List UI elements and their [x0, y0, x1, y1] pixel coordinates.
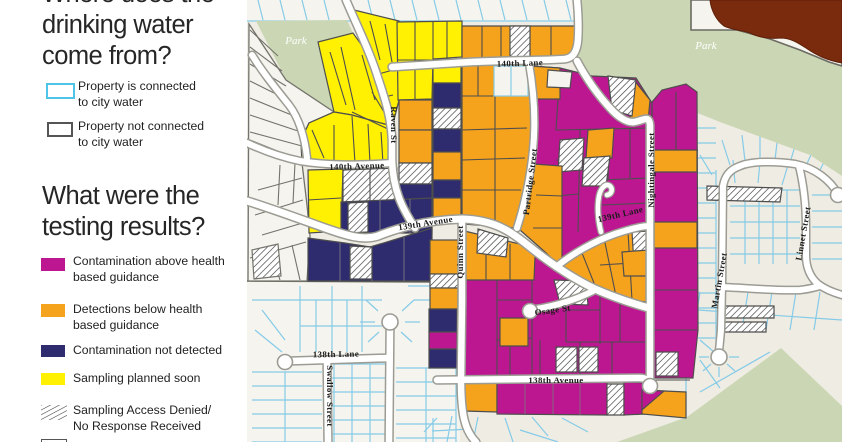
svg-text:Raven St: Raven St — [389, 106, 399, 143]
svg-text:Quinn Street: Quinn Street — [455, 225, 465, 278]
svg-text:Nightingale Street: Nightingale Street — [646, 132, 656, 207]
svg-text:Park: Park — [694, 40, 718, 52]
svg-text:138th Lane: 138th Lane — [313, 349, 359, 360]
svg-text:140th Avenue: 140th Avenue — [329, 160, 385, 172]
svg-text:140th Lane: 140th Lane — [497, 57, 544, 69]
svg-text:Swallow Street: Swallow Street — [325, 365, 335, 426]
svg-text:138th Avenue: 138th Avenue — [528, 375, 583, 385]
svg-text:Park: Park — [284, 35, 308, 47]
